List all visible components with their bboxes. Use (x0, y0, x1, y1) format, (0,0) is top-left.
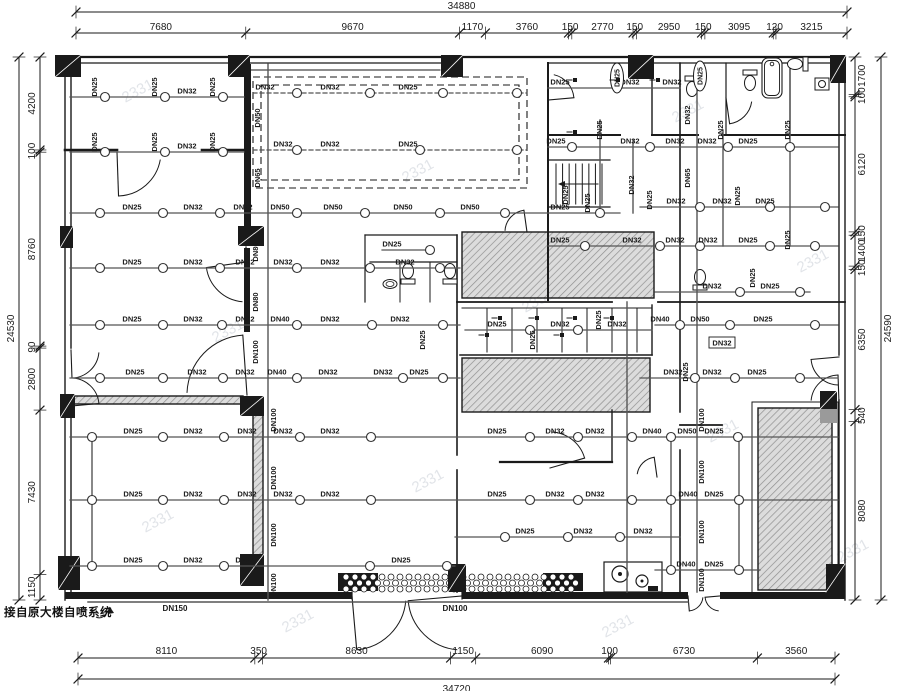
pendant-sprinkler-dot (573, 78, 577, 82)
toilet-tank (803, 57, 808, 71)
riser-size-label: DN100 (269, 466, 278, 489)
sprinkler-head (216, 264, 225, 273)
dimension-label: 6350 (857, 328, 868, 351)
pebble-decoration (550, 586, 556, 592)
pipe-size-label: DN25 (738, 137, 757, 146)
pebble-decoration (478, 586, 484, 592)
pebble-decoration (442, 574, 448, 580)
riser-size-label: DN25 (594, 310, 603, 329)
riser-size-label: DN32 (627, 175, 636, 194)
pipe-size-label: DN32 (622, 236, 641, 245)
pipe-size-label: DN40 (676, 560, 695, 569)
sprinkler-head (159, 496, 168, 505)
pipe-size-label: DN32 (665, 236, 684, 245)
toilet-bowl (745, 76, 756, 91)
dimension-label: 6120 (857, 153, 868, 176)
pipe-size-label: DN25 (704, 427, 723, 436)
pipe-size-label: DN32 (585, 490, 604, 499)
pipe-size-label: DN32 (320, 258, 339, 267)
sprinkler-head (219, 148, 228, 157)
pebble-decoration (469, 586, 475, 592)
riser-size-label: DN65 (683, 168, 692, 187)
pipe-size-label: DN32 (666, 197, 685, 206)
hatched-shaft-area (758, 408, 832, 590)
sprinkler-head (766, 242, 775, 251)
pipe-size-label: DN25 (150, 132, 159, 151)
pipe-size-label: DN32 (318, 368, 337, 377)
pebble-decoration (375, 580, 381, 586)
pipe-size-label: DN32 (183, 203, 202, 212)
dimension-label: 1150 (452, 646, 474, 657)
pebble-decoration (393, 580, 399, 586)
riser-size-label: DN100 (697, 460, 706, 483)
toilet-fixture (743, 70, 757, 91)
pipe-size-label: DN25 (150, 77, 159, 96)
sprinkler-head (159, 209, 168, 218)
pipe-size-label: DN25 (546, 137, 565, 146)
pipe-size-label: DN40 (650, 315, 669, 324)
riser-size-label: DN25 (783, 120, 792, 139)
sprinkler-head (88, 433, 97, 442)
pipe-size-label: DN25 (550, 236, 569, 245)
sprinkler-head (667, 496, 676, 505)
pipe-size-label: DN32 (320, 83, 339, 92)
pipe-size-label: DN32 (237, 427, 256, 436)
dimension-label: 7430 (27, 481, 38, 504)
pebble-decoration (361, 574, 367, 580)
door-leaf (71, 350, 72, 378)
door-arc (206, 268, 242, 302)
pipe-size-label: DN32 (320, 140, 339, 149)
pipe-size-label: DN32 (698, 236, 717, 245)
sprinkler-head (439, 374, 448, 383)
pump-dot (618, 572, 622, 576)
sprinkler-head (159, 321, 168, 330)
dimension-label: 3560 (785, 646, 808, 657)
riser-size-label: DN25 (528, 330, 537, 349)
pebble-decoration (555, 580, 561, 586)
pebble-decoration (424, 574, 430, 580)
pebble-decoration (474, 580, 480, 586)
pipe-size-label: DN25 (747, 368, 766, 377)
pebble-decoration (505, 574, 511, 580)
pebble-decoration (487, 574, 493, 580)
pipe-size-label: DN25 (208, 132, 217, 151)
pebble-decoration (406, 586, 412, 592)
pipe-size-label: DN25 (90, 132, 99, 151)
toilet-tank (443, 279, 457, 284)
sprinkler-head (159, 264, 168, 273)
pipe-size-label: DN32 (545, 490, 564, 499)
pipe-size-label: DN32 (183, 427, 202, 436)
sink-fixture (815, 78, 829, 90)
pebble-decoration (343, 586, 349, 592)
pipe-size-label: DN25 (738, 236, 757, 245)
pipe-size-label: DN50 (270, 203, 289, 212)
sprinkler-head (220, 562, 229, 571)
dimension-label: 150 (857, 259, 868, 276)
pipe-size-label: DN32 (573, 527, 592, 536)
door-arc (187, 335, 243, 393)
pipe-size-label: DN40 (642, 427, 661, 436)
watermark-text: 2331 (399, 156, 436, 187)
pendant-sprinkler-dot (573, 316, 577, 320)
pipe-size-label: DN32 (183, 556, 202, 565)
door-leaf (352, 596, 357, 650)
door-arc (730, 102, 752, 124)
pipe-size-label: DN32 (177, 87, 196, 96)
pipe-size-label: DN32 (177, 142, 196, 151)
sprinkler-head (574, 496, 583, 505)
pipe-size-label: DN25 (550, 78, 569, 87)
sprinkler-head (574, 326, 583, 335)
sink-oval-fixture (383, 280, 397, 289)
riser-size-label: DN100 (697, 568, 706, 591)
hatched-shaft-area (462, 358, 650, 412)
pebble-decoration (546, 580, 552, 586)
sprinkler-head (367, 496, 376, 505)
sprinkler-head (293, 374, 302, 383)
pipe-size-label: DN25 (753, 315, 772, 324)
sprinkler-head (796, 374, 805, 383)
pebble-decoration (384, 580, 390, 586)
sprinkler-head (96, 209, 105, 218)
pipe-size-label: DN25 (487, 490, 506, 499)
watermark-text: 2331 (279, 606, 316, 637)
sprinkler-head (501, 209, 510, 218)
door-leaf (838, 375, 839, 403)
dimension-label: 350 (250, 646, 267, 657)
dimension-label: 2770 (591, 22, 614, 33)
pipe-size-label: DN32 (237, 490, 256, 499)
pendant-sprinkler-dot (656, 78, 660, 82)
pebble-decoration (487, 586, 493, 592)
pipe-size-label: DN25 (208, 77, 217, 96)
pipe-size-label: DN25 (755, 197, 774, 206)
sprinkler-head (568, 143, 577, 152)
sprinkler-head (159, 433, 168, 442)
pipe-size-label: DN25 (398, 83, 417, 92)
pebble-decoration (379, 574, 385, 580)
pendant-sprinkler-dot (485, 333, 489, 337)
hatched-shaft-area (63, 396, 243, 404)
dimension-label: 540 (857, 407, 868, 424)
door-arc (637, 457, 654, 474)
sprinkler-head (821, 203, 830, 212)
sprinkler-head (296, 433, 305, 442)
sprinkler-head (366, 264, 375, 273)
dimension-label: 9670 (342, 22, 365, 33)
pipe-size-label: DN25 (123, 556, 142, 565)
pendant-sprinkler-dot (616, 78, 620, 82)
pipe-size-label: DN32 (665, 137, 684, 146)
sprinkler-head (220, 433, 229, 442)
pebble-decoration (478, 574, 484, 580)
pipe-size-label: DN25 (122, 315, 141, 324)
dimension-label: 100 (601, 646, 618, 657)
riser-size-label: DN50 (253, 108, 262, 127)
pebble-decoration (429, 580, 435, 586)
sprinkler-head (736, 288, 745, 297)
sprinkler-head (293, 209, 302, 218)
sprinkler-head (596, 209, 605, 218)
dimension-label: 8760 (27, 238, 38, 261)
toilet-tank (401, 279, 415, 284)
riser-size-label: DN25 (783, 230, 792, 249)
door-arc (119, 160, 161, 196)
sprinkler-head (786, 143, 795, 152)
dimension-label: 3215 (800, 22, 823, 33)
sprinkler-head (399, 374, 408, 383)
dimension-label: 100 (857, 87, 868, 104)
riser-size-label: DN25 (645, 190, 654, 209)
dimension-label: 1150 (27, 576, 38, 598)
sprinkler-head (96, 321, 105, 330)
pipe-size-label: DN32 (187, 368, 206, 377)
dimension-label: 24590 (883, 314, 894, 342)
sprinkler-head (696, 203, 705, 212)
sprinkler-head (616, 533, 625, 542)
sprinkler-head (443, 562, 452, 571)
door-arc (357, 601, 406, 650)
pebble-decoration (532, 574, 538, 580)
dimension-label: 150 (857, 225, 868, 242)
pipe-size-label: DN32 (273, 140, 292, 149)
sprinkler-head (296, 496, 305, 505)
dimension-label: 8080 (857, 499, 868, 522)
sprinkler-head (366, 562, 375, 571)
pipe-size-label: DN32 (585, 427, 604, 436)
dimension-label: 150 (695, 22, 712, 33)
dimension-label: 150 (626, 22, 643, 33)
toilet-fixture (788, 57, 809, 71)
sprinkler-head (501, 533, 510, 542)
pebble-decoration (388, 586, 394, 592)
pipe-size-label: DN32 (633, 527, 652, 536)
riser-size-label: DN25 (733, 186, 742, 205)
sprinkler-head (526, 433, 535, 442)
pipe-size-label: DN32 (183, 315, 202, 324)
pebble-decoration (357, 580, 363, 586)
sprinkler-head (796, 288, 805, 297)
pipe-size-label: DN32 (183, 490, 202, 499)
pipe-size-label: DN32 (373, 368, 392, 377)
pebble-decoration (469, 574, 475, 580)
pebble-decoration (550, 574, 556, 580)
riser-size-label: DN25 (716, 120, 725, 139)
sprinkler-head (513, 146, 522, 155)
watermark-text: 2331 (599, 611, 636, 642)
pebble-decoration (424, 586, 430, 592)
watermark-text: 2331 (834, 536, 871, 567)
sprinkler-head (439, 321, 448, 330)
watermark-text: 2331 (139, 506, 176, 537)
pebble-decoration (559, 574, 565, 580)
pebble-decoration (492, 580, 498, 586)
sprinkler-head (161, 93, 170, 102)
door-leaf (811, 357, 839, 359)
pump-base (648, 586, 658, 591)
riser-size-label: DN100 (251, 340, 260, 363)
riser-size-label: DN25 (595, 120, 604, 139)
pebble-decoration (406, 574, 412, 580)
pipe-size-label: DN32 (233, 203, 252, 212)
sprinkler-head (564, 533, 573, 542)
pebble-decoration (388, 574, 394, 580)
pipe-size-label: DN32 (702, 282, 721, 291)
pebble-decoration (523, 574, 529, 580)
pipe-size-label: DN32 (712, 197, 731, 206)
pump-dot (641, 580, 644, 583)
pipe-size-label: DN25 (487, 427, 506, 436)
pipe-size-label: DN32 (183, 258, 202, 267)
pebble-decoration (370, 586, 376, 592)
riser-size-label: DN100 (269, 523, 278, 546)
sprinkler-head (526, 496, 535, 505)
sprinkler-head (293, 264, 302, 273)
toilet-tank (743, 70, 757, 75)
pebble-decoration (537, 580, 543, 586)
pipe-size-label: DN25 (698, 67, 705, 85)
pipe-size-label: DN25 (515, 527, 534, 536)
pebble-decoration (528, 580, 534, 586)
pipe-size-label: DN32 (235, 315, 254, 324)
pipe-size-label: DN50 (677, 427, 696, 436)
dimension-label: 7680 (150, 22, 173, 33)
riser-size-label: DN80 (251, 242, 260, 261)
dimension-label: 24530 (6, 314, 17, 342)
pebble-decoration (510, 580, 516, 586)
pipe-size-label: DN32 (273, 490, 292, 499)
feed-pipe-label: DN150 (163, 604, 188, 613)
pipe-size-label: DN32 (697, 137, 716, 146)
pipe-size-label: DN25 (123, 490, 142, 499)
sprinkler-head (436, 264, 445, 273)
pipe-size-label: DN32 (255, 83, 274, 92)
pipe-size-label: DN25 (615, 69, 622, 87)
sprinkler-head (101, 148, 110, 157)
feed-pipe-label: DN100 (443, 604, 468, 613)
sprinkler-head (293, 321, 302, 330)
dimension-label: 2800 (27, 368, 38, 391)
pipe-size-label: DN25 (487, 320, 506, 329)
sprinkler-head (811, 242, 820, 251)
riser-size-label: DN80 (251, 292, 260, 311)
pipe-size-label: DN25 (122, 203, 141, 212)
riser-size-label: DN32 (683, 105, 692, 124)
pebble-decoration (568, 574, 574, 580)
pebble-decoration (523, 586, 529, 592)
pendant-sprinkler-dot (535, 316, 539, 320)
pipe-size-label: DN25 (704, 560, 723, 569)
dimension-label: 3095 (728, 22, 751, 33)
sprinkler-head (366, 89, 375, 98)
pebble-decoration (496, 586, 502, 592)
dimension-label: 1170 (462, 22, 484, 33)
door-leaf (408, 596, 462, 601)
pebble-decoration (519, 580, 525, 586)
pebble-decoration (438, 580, 444, 586)
pipe-size-label: DN32 (550, 320, 569, 329)
pebble-decoration (420, 580, 426, 586)
dimension-label: 2950 (658, 22, 681, 33)
sprinkler-head (735, 496, 744, 505)
sprinkler-head (367, 433, 376, 442)
pipe-size-label: DN32 (545, 427, 564, 436)
riser-size-label: DN100 (269, 573, 278, 596)
pebble-decoration (514, 574, 520, 580)
pipe-size-label: DN32 (390, 315, 409, 324)
pipe-size-label: DN50 (460, 203, 479, 212)
sprinkler-head (293, 146, 302, 155)
pendant-sprinkler-dot (560, 333, 564, 337)
riser-size-label: DN65 (253, 168, 262, 187)
pipe-size-label: DN25 (90, 77, 99, 96)
door-leaf (688, 596, 689, 611)
pendant-sprinkler-dot (610, 316, 614, 320)
pebble-decoration (568, 586, 574, 592)
pipe-size-label: DN32 (273, 258, 292, 267)
sprinkler-head (581, 242, 590, 251)
sprinkler-head (735, 566, 744, 575)
sprinkler-head (436, 209, 445, 218)
door-arc (705, 597, 719, 611)
pebble-decoration (541, 574, 547, 580)
pebble-decoration (348, 580, 354, 586)
floor-plan-canvas: 2331233123312331233123312331233123312331… (0, 0, 902, 691)
sprinkler-head (426, 246, 435, 255)
pipe-size-label: DN25 (125, 368, 144, 377)
dimension-label: 120 (766, 22, 783, 33)
dimension-label: 150 (562, 22, 579, 33)
pebble-decoration (442, 586, 448, 592)
door-arc (689, 597, 703, 611)
pebble-decoration (433, 574, 439, 580)
pebble-decoration (573, 580, 579, 586)
sprinkler-head (726, 321, 735, 330)
riser-size-label: DN100 (697, 520, 706, 543)
pipe-size-label: DN32 (663, 368, 682, 377)
pipe-size-label: DN40 (267, 368, 286, 377)
pipe-size-label: DN25 (382, 240, 401, 249)
pebble-decoration (379, 586, 385, 592)
pipe-size-label: DN32 (320, 427, 339, 436)
pipe-size-label: DN25 (123, 427, 142, 436)
pebble-decoration (402, 580, 408, 586)
sprinkler-head (216, 209, 225, 218)
pebble-decoration (483, 580, 489, 586)
pipe-size-label: DN25 (704, 490, 723, 499)
sprinkler-head (96, 374, 105, 383)
riser-size-label: DN25 (681, 362, 690, 381)
sprinkler-head (676, 321, 685, 330)
dimension-label: 4200 (27, 92, 38, 115)
pebble-decoration (411, 580, 417, 586)
sprinkler-head (724, 143, 733, 152)
door-leaf (243, 335, 247, 395)
dimension-label: 1700 (857, 64, 868, 87)
pipe-size-label: DN32 (320, 315, 339, 324)
pipe-size-label: DN25 (760, 282, 779, 291)
dashed-ceiling-zone (261, 85, 519, 180)
pipe-size-label: DN32 (235, 368, 254, 377)
pipe-size-label: DN25 (409, 368, 428, 377)
pipe-size-label: DN32 (395, 258, 414, 267)
pipe-size-label: DN25 (398, 140, 417, 149)
sprinkler-head (811, 321, 820, 330)
riser-size-label: DN25 (418, 330, 427, 349)
pebble-decoration (352, 574, 358, 580)
